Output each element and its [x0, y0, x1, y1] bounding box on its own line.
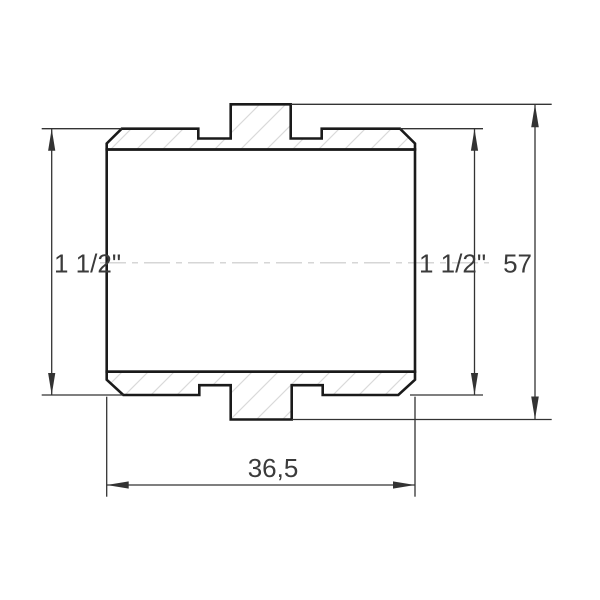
- arrowhead-down: [471, 373, 478, 395]
- bottom-thread-section: [107, 372, 415, 420]
- arrowhead-up: [48, 129, 55, 151]
- arrowhead-down: [48, 373, 55, 395]
- overall-length-dimension-label: 57: [503, 249, 532, 279]
- right-thread-dimension-label: 1 1/2": [419, 249, 486, 279]
- arrowhead-down: [531, 397, 539, 420]
- arrowhead-up: [531, 104, 539, 127]
- fitting-body: [107, 150, 415, 372]
- right-thread-dimension: 1 1/2": [400, 129, 486, 395]
- body-width-dimension-label: 36,5: [248, 453, 299, 483]
- fitting-outline: [107, 104, 415, 419]
- left-thread-dimension-label: 1 1/2": [54, 249, 121, 279]
- left-thread-dimension: 1 1/2": [42, 129, 124, 395]
- arrowhead-right: [393, 481, 415, 488]
- arrowhead-up: [471, 129, 478, 151]
- drawing-page: 1 1/2" 1 1/2" 57 36,5: [0, 0, 600, 600]
- technical-drawing-canvas: 1 1/2" 1 1/2" 57 36,5: [0, 0, 600, 600]
- arrowhead-left: [107, 481, 129, 488]
- top-thread-section: [107, 104, 415, 149]
